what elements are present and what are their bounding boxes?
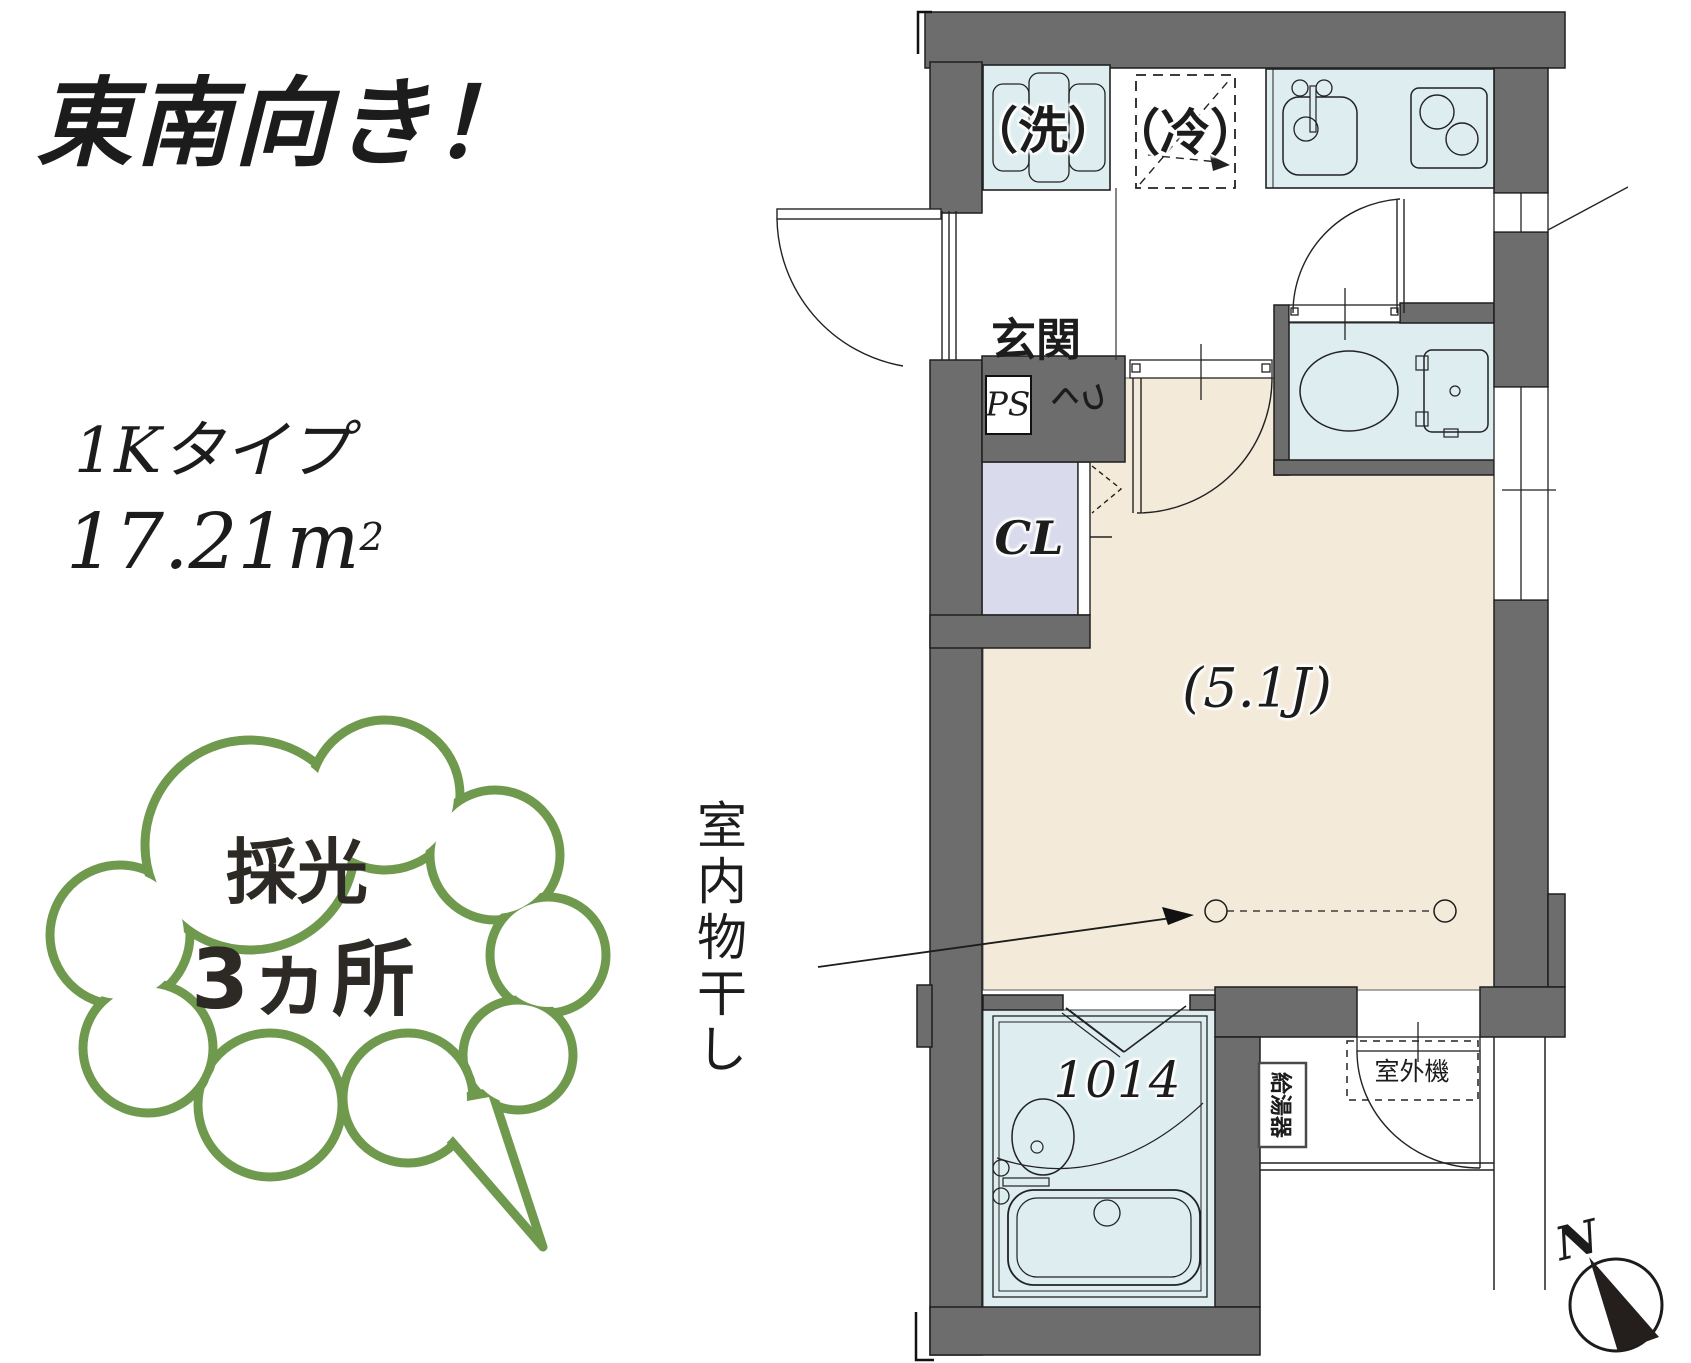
pipe-space-label: PS [986, 385, 1031, 424]
shoes-char-2: つ [1075, 382, 1117, 411]
headline: 東南向き！ [36, 44, 531, 185]
badge-line1: 採光 [226, 816, 368, 918]
toilet-floor [1289, 323, 1494, 460]
entrance-label: 玄関 [991, 304, 1081, 369]
floorplan-page: 東南向き！ 1Kタイプ 17.21m2 採光 3ヵ所 （洗） （冷） 玄関 PS… [0, 0, 1691, 1363]
type-label: 1Kタイプ [74, 400, 350, 491]
floorplan-drawing [0, 0, 1691, 1363]
bath-size-label: 1014 [1053, 1051, 1180, 1109]
closet-label: CL [995, 511, 1064, 565]
entrance-door [777, 209, 956, 366]
water-heater-label: 給湯器 [1266, 1072, 1298, 1138]
area-superscript: 2 [359, 515, 384, 560]
toilet-door [1293, 199, 1404, 313]
shoes-label: くつ [1052, 376, 1110, 418]
fridge-label: （冷） [1110, 93, 1260, 165]
kitchen-counter [1266, 69, 1494, 188]
room-size-label: (5.1J) [1182, 657, 1332, 720]
window-annotation-line [1548, 187, 1628, 230]
drying-label: 室内物干し [695, 798, 749, 1078]
washer-label: （洗） [968, 91, 1118, 163]
closet-door-strip [1078, 462, 1090, 615]
area-label: 17.21m2 [66, 498, 384, 587]
outdoor-unit-label: 室外機 [1374, 1052, 1449, 1088]
badge-line2: 3ヵ所 [191, 912, 415, 1032]
north-compass [1570, 1257, 1662, 1352]
